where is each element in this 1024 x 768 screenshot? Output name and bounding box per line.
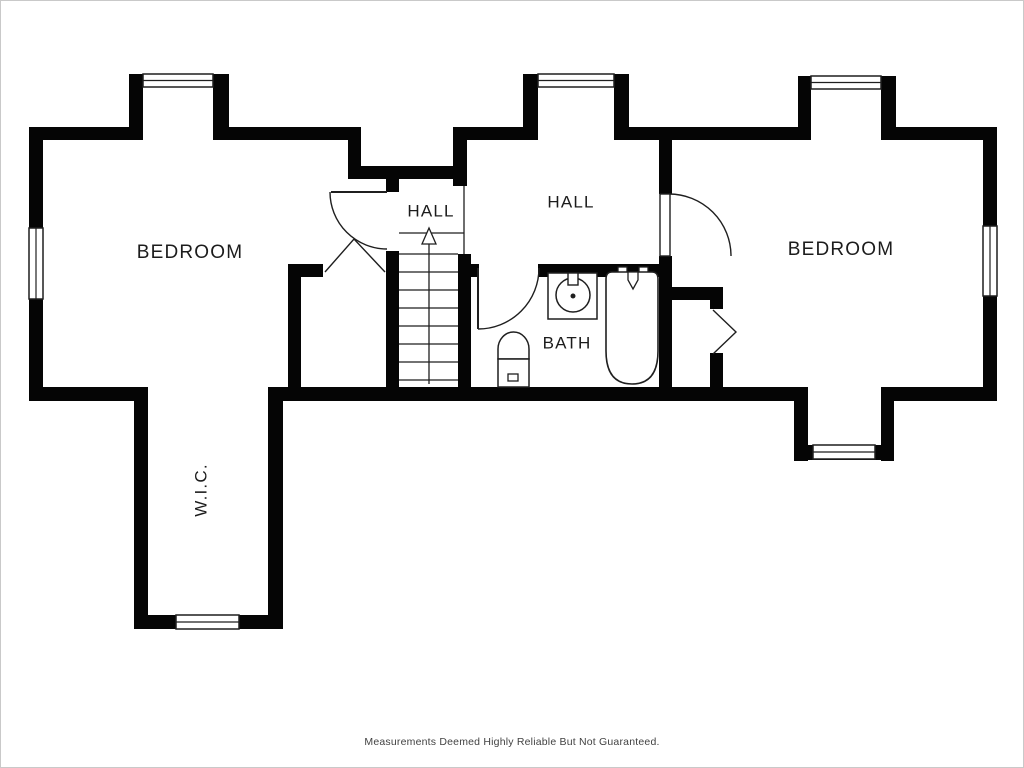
bathtub xyxy=(606,272,658,384)
room-label-wic: W.I.C. xyxy=(191,463,210,516)
door-bath-swing-arc xyxy=(478,268,539,329)
wall-segment xyxy=(386,166,399,192)
sink-faucet xyxy=(568,273,578,285)
toilet-bowl xyxy=(498,332,529,359)
wall-segment xyxy=(129,74,143,140)
wall-segment xyxy=(710,300,723,309)
wall-segment xyxy=(659,256,672,401)
door-bedroom-right-leaf xyxy=(660,194,670,256)
bifold-closet-right xyxy=(713,310,736,354)
wall-segment xyxy=(659,127,672,194)
wall-segment xyxy=(134,387,148,629)
room-label-hall-main: HALL xyxy=(547,192,594,211)
wall-segment xyxy=(268,387,283,629)
stair-up-arrow-icon xyxy=(422,228,436,244)
room-label-bedroom-left: BEDROOM xyxy=(137,242,244,263)
room-label-hall-small: HALL xyxy=(407,201,454,220)
room-label-bath: BATH xyxy=(543,333,592,352)
wall-segment xyxy=(629,127,798,140)
wall-segment xyxy=(213,74,229,140)
wall-segment xyxy=(614,74,629,140)
toilet-flush-button xyxy=(508,374,518,381)
wall-segment xyxy=(288,264,323,277)
wall-segment xyxy=(798,76,811,140)
wall-segment xyxy=(268,387,808,401)
wall-segment xyxy=(29,387,148,401)
wall-segment xyxy=(896,127,997,140)
wall-segment xyxy=(894,387,997,401)
wall-segment xyxy=(458,254,471,401)
wall-segment xyxy=(229,127,361,140)
bifold-closet-left xyxy=(325,239,385,272)
toilet-tank xyxy=(498,359,529,387)
wall-segment xyxy=(288,264,301,401)
wall-segment xyxy=(348,166,466,179)
door-bedroom-right-swing-arc xyxy=(669,194,731,256)
wall-segment xyxy=(523,74,538,140)
wall-segment xyxy=(386,251,399,401)
disclaimer-text: Measurements Deemed Highly Reliable But … xyxy=(1,736,1023,748)
wall-segment xyxy=(881,76,896,140)
floorplan-svg: BEDROOMHALLHALLBATHBEDROOMW.I.C. xyxy=(1,1,1023,767)
sink-drain xyxy=(571,294,576,299)
room-label-bedroom-right: BEDROOM xyxy=(788,239,895,260)
door-bedroom-left-swing-arc xyxy=(330,192,387,249)
floorplan-page: BEDROOMHALLHALLBATHBEDROOMW.I.C. Measure… xyxy=(0,0,1024,768)
wall-segment xyxy=(672,287,723,300)
wall-segment xyxy=(29,127,143,140)
